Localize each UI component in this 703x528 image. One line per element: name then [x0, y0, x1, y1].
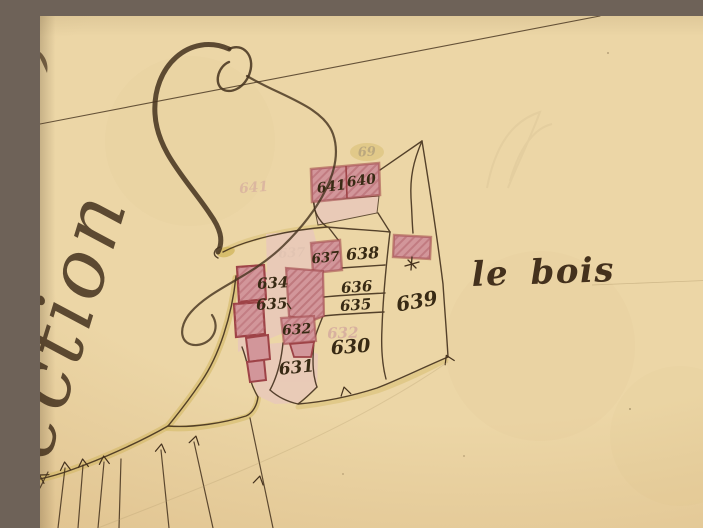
edge-mark — [40, 52, 48, 73]
section-script-text: ection — [40, 180, 146, 469]
parcel-label-635-left: 635 — [256, 294, 288, 314]
boundary-ne-inner — [411, 141, 422, 233]
pencil-squiggle — [487, 112, 552, 188]
boundary-ne-spur — [380, 141, 422, 170]
stain — [105, 56, 275, 226]
speck — [342, 473, 344, 475]
parcel-label-639: 639 — [394, 286, 439, 317]
boundary-638-west — [329, 228, 339, 241]
building-639-barn — [393, 235, 431, 259]
tick — [189, 435, 201, 445]
place-name-le-bois: le bois — [471, 250, 616, 295]
building-outline — [286, 268, 324, 322]
parcel-label-631: 631 — [278, 356, 315, 380]
building-label-632: 632 — [282, 321, 313, 339]
boundary-yard641-east — [378, 213, 390, 232]
tick — [339, 386, 351, 396]
ghost-label-641: 641 — [238, 179, 269, 197]
field-line — [161, 450, 169, 528]
building-632-annex — [290, 342, 314, 357]
boundary-village-west — [168, 276, 236, 426]
speck — [607, 52, 609, 54]
boundary-638-north — [327, 227, 390, 232]
field-line — [194, 442, 213, 528]
building-west-c — [246, 335, 270, 362]
map-canvas: 69 641 637 632 — [40, 16, 703, 528]
parcel-label-630: 630 — [330, 335, 371, 360]
cadastral-map-sheet[interactable]: 69 641 637 632 — [40, 16, 703, 528]
field-line — [98, 462, 104, 528]
parcel-label-635-right: 635 — [339, 295, 371, 315]
boundary-south — [298, 357, 448, 404]
field-line — [119, 459, 121, 528]
boundary-639-west — [382, 232, 390, 379]
speck — [629, 408, 631, 410]
ghost-label-69: 69 — [357, 145, 376, 161]
building-west-d — [247, 360, 266, 382]
building-central-strip — [286, 268, 324, 322]
parcel-label-638: 638 — [345, 243, 380, 264]
parcel-label-636: 636 — [340, 277, 373, 297]
building-label-637: 637 — [311, 249, 341, 268]
speck — [463, 455, 465, 457]
parcel-label-634: 634 — [257, 273, 289, 293]
building-outline — [393, 235, 431, 259]
boundary-638-south — [341, 265, 385, 268]
diagonal-border-line — [40, 16, 600, 124]
field-line — [78, 465, 83, 528]
